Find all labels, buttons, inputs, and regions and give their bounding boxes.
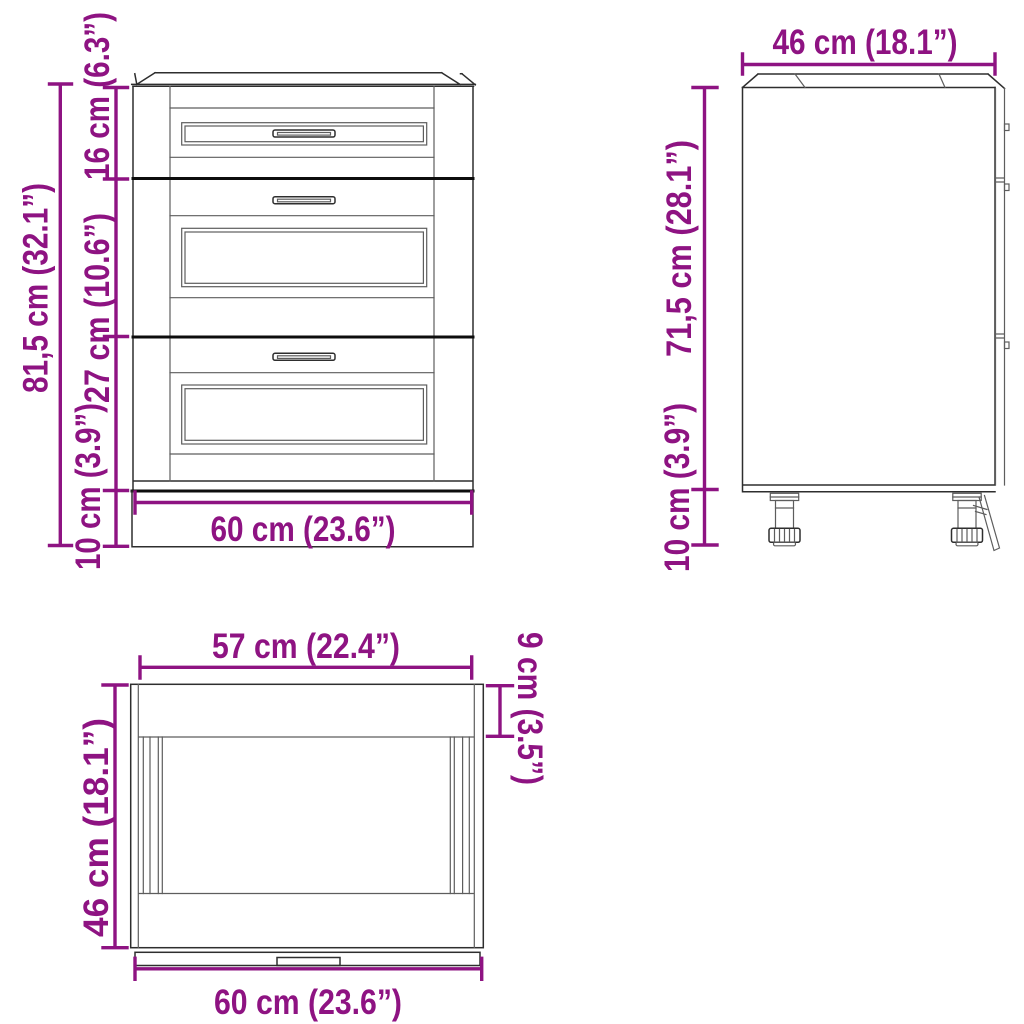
- side-top-panel: [743, 74, 1005, 89]
- label-middle-drawer-height: 27 cm (10.6”): [78, 213, 117, 403]
- front-view: 81,5 cm (32.1”) 16 cm (6.3”) 27 cm (10.6…: [17, 12, 476, 570]
- label-top-depth: 46 cm (18.1”): [77, 718, 116, 937]
- drawer-2-handle: [273, 197, 335, 204]
- dimension-line-bottom-width: [135, 958, 482, 979]
- top-drawer-front: [135, 952, 480, 965]
- top-dimensions: 57 cm (22.4”) 9 cm (3.5”) 46 cm (18.1”) …: [77, 627, 549, 1022]
- label-total-height: 81,5 cm (32.1”): [17, 183, 56, 393]
- front-carcass: [133, 86, 473, 491]
- cabinet-dimension-diagram: 81,5 cm (32.1”) 16 cm (6.3”) 27 cm (10.6…: [0, 0, 1024, 1024]
- side-view: 46 cm (18.1”) 71,5 cm (28.1”) 10 cm (3.9…: [658, 23, 1009, 572]
- drawer-1-handle: [273, 130, 335, 137]
- front-drawer-1: [170, 108, 434, 157]
- label-side-depth: 46 cm (18.1”): [773, 23, 958, 62]
- label-bottom-width: 60 cm (23.6”): [214, 983, 402, 1022]
- side-handle-mark-1: [1005, 124, 1010, 131]
- label-body-height: 71,5 cm (28.1”): [660, 140, 699, 357]
- front-drawer-2: [170, 197, 434, 298]
- side-handle-mark-2: [1005, 184, 1010, 191]
- label-front-width: 60 cm (23.6”): [211, 510, 396, 549]
- label-top-drawer-height: 16 cm (6.3”): [78, 12, 117, 180]
- top-view: 57 cm (22.4”) 9 cm (3.5”) 46 cm (18.1”) …: [77, 627, 549, 1022]
- front-drawer-3: [170, 353, 434, 454]
- dimension-line-back-rail-depth: [488, 686, 513, 737]
- top-drawer-slides: [143, 737, 469, 894]
- label-drawer-front-width: 57 cm (22.4”): [212, 627, 400, 666]
- side-front-leg: [769, 493, 800, 546]
- side-handle-mark-3: [1005, 342, 1010, 349]
- front-dimensions: 81,5 cm (32.1”) 16 cm (6.3”) 27 cm (10.6…: [17, 12, 472, 570]
- drawer-3-handle: [273, 353, 335, 360]
- label-plinth-height: 10 cm (3.9”): [69, 403, 108, 570]
- side-dimensions: 46 cm (18.1”) 71,5 cm (28.1”) 10 cm (3.9…: [658, 23, 995, 572]
- diagram-page: 81,5 cm (32.1”) 16 cm (6.3”) 27 cm (10.6…: [0, 0, 1024, 1024]
- side-drawer-front-edge: [996, 89, 1010, 486]
- top-handle: [277, 958, 340, 966]
- front-top-panel: [132, 73, 476, 86]
- side-carcass: [743, 88, 996, 492]
- label-back-rail-depth: 9 cm (3.5”): [510, 632, 549, 785]
- side-rear-leg: [952, 493, 983, 546]
- label-leg-height: 10 cm (3.9”): [658, 403, 697, 572]
- top-carcass: [131, 684, 484, 947]
